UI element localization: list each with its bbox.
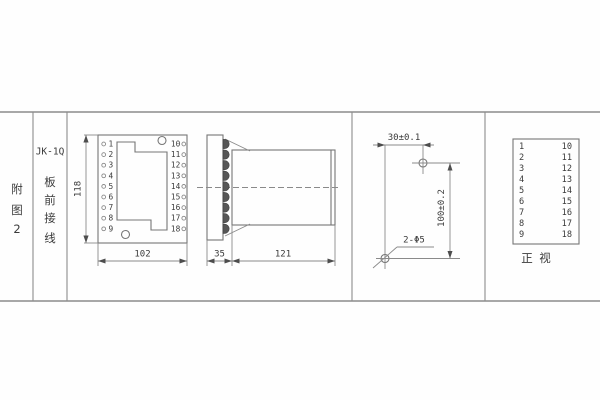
dim-30: 30±0.1 — [373, 133, 434, 148]
svg-text:17: 17 — [171, 214, 181, 223]
side-terminal-bumps — [223, 139, 229, 233]
table-left-numbers: 1 2 3 4 5 6 7 8 9 — [519, 142, 524, 240]
model-label-column: JK-1Q 板 前 接 线 — [36, 147, 65, 246]
model-label: JK-1Q — [36, 147, 65, 158]
dim-100: 100±0.2 — [437, 163, 453, 259]
svg-text:15: 15 — [171, 193, 181, 202]
table-caption-char-2: 视 — [539, 251, 551, 265]
table-caption: 正 视 — [521, 251, 551, 265]
svg-text:11: 11 — [562, 153, 572, 163]
dim-121-label: 121 — [275, 250, 291, 260]
svg-text:2: 2 — [519, 153, 524, 163]
holes-callout: 2-Φ5 — [373, 236, 434, 269]
svg-text:11: 11 — [171, 150, 181, 159]
svg-text:14: 14 — [562, 186, 572, 196]
drill-plan: 30±0.1 100±0.2 2-Φ5 — [373, 133, 460, 269]
svg-text:17: 17 — [562, 219, 572, 229]
front-view: 1 2 3 4 5 6 7 8 9 10 11 12 13 14 — [74, 135, 188, 266]
technical-drawing: 附 图 2 JK-1Q 板 前 接 线 1 2 3 — [0, 0, 600, 400]
svg-text:13: 13 — [171, 171, 181, 180]
figure-label-char-1: 附 — [11, 182, 23, 196]
svg-text:9: 9 — [109, 224, 114, 233]
drawing-sheet: 附 图 2 JK-1Q 板 前 接 线 1 2 3 — [0, 0, 600, 400]
holes-label: 2-Φ5 — [403, 236, 425, 246]
table-caption-char-1: 正 — [521, 251, 533, 265]
table-right-numbers: 10 11 12 13 14 15 16 17 18 — [562, 142, 572, 240]
svg-text:12: 12 — [171, 161, 181, 170]
figure-label-char-2: 图 — [11, 203, 23, 217]
mounting-label-char-3: 接 — [44, 211, 56, 225]
dim-35-label: 35 — [214, 250, 225, 260]
side-view: 35 121 — [197, 135, 341, 266]
svg-text:10: 10 — [171, 140, 181, 149]
mounting-label-char-4: 线 — [44, 231, 56, 245]
mounting-hole-top — [158, 137, 166, 145]
mounting-label-char-2: 前 — [44, 193, 56, 207]
figure-label-column: 附 图 2 — [11, 182, 23, 236]
svg-text:5: 5 — [519, 186, 524, 196]
svg-text:18: 18 — [171, 224, 181, 233]
svg-text:16: 16 — [171, 203, 181, 212]
front-left-terminal-numbers: 1 2 3 4 5 6 7 8 9 — [109, 140, 114, 234]
dim-100-label: 100±0.2 — [437, 189, 447, 227]
dim-102: 102 — [98, 243, 187, 266]
dim-118-label: 118 — [74, 181, 84, 197]
front-left-terminal-pins — [102, 142, 106, 231]
svg-text:7: 7 — [519, 208, 524, 218]
svg-text:6: 6 — [519, 197, 524, 207]
dim-30-label: 30±0.1 — [388, 133, 421, 143]
sheet-frame — [0, 112, 600, 301]
svg-text:9: 9 — [519, 230, 524, 240]
front-right-terminal-numbers: 10 11 12 13 14 15 16 17 18 — [171, 140, 181, 234]
svg-text:1: 1 — [109, 140, 114, 149]
svg-text:3: 3 — [109, 161, 114, 170]
svg-text:4: 4 — [519, 175, 524, 185]
svg-text:16: 16 — [562, 208, 572, 218]
figure-label-char-3: 2 — [13, 222, 20, 236]
svg-text:5: 5 — [109, 182, 114, 191]
mounting-label-char-1: 板 — [44, 175, 56, 189]
svg-text:3: 3 — [519, 164, 524, 174]
terminal-table: 1 2 3 4 5 6 7 8 9 10 11 12 13 14 15 16 1… — [513, 139, 579, 265]
dim-102-label: 102 — [134, 250, 150, 260]
svg-text:6: 6 — [109, 193, 114, 202]
svg-text:13: 13 — [562, 175, 572, 185]
svg-text:4: 4 — [109, 171, 114, 180]
svg-text:2: 2 — [109, 150, 114, 159]
front-right-terminal-pins — [182, 142, 186, 231]
svg-text:12: 12 — [562, 164, 572, 174]
relay-case-step-outline — [117, 142, 167, 230]
svg-text:15: 15 — [562, 197, 572, 207]
dim-118: 118 — [74, 135, 99, 243]
svg-text:8: 8 — [109, 214, 114, 223]
svg-text:7: 7 — [109, 203, 114, 212]
svg-text:1: 1 — [519, 142, 524, 152]
svg-text:10: 10 — [562, 142, 572, 152]
svg-text:18: 18 — [562, 230, 572, 240]
svg-text:8: 8 — [519, 219, 524, 229]
mounting-hole-bottom — [122, 231, 130, 239]
svg-text:14: 14 — [171, 182, 181, 191]
